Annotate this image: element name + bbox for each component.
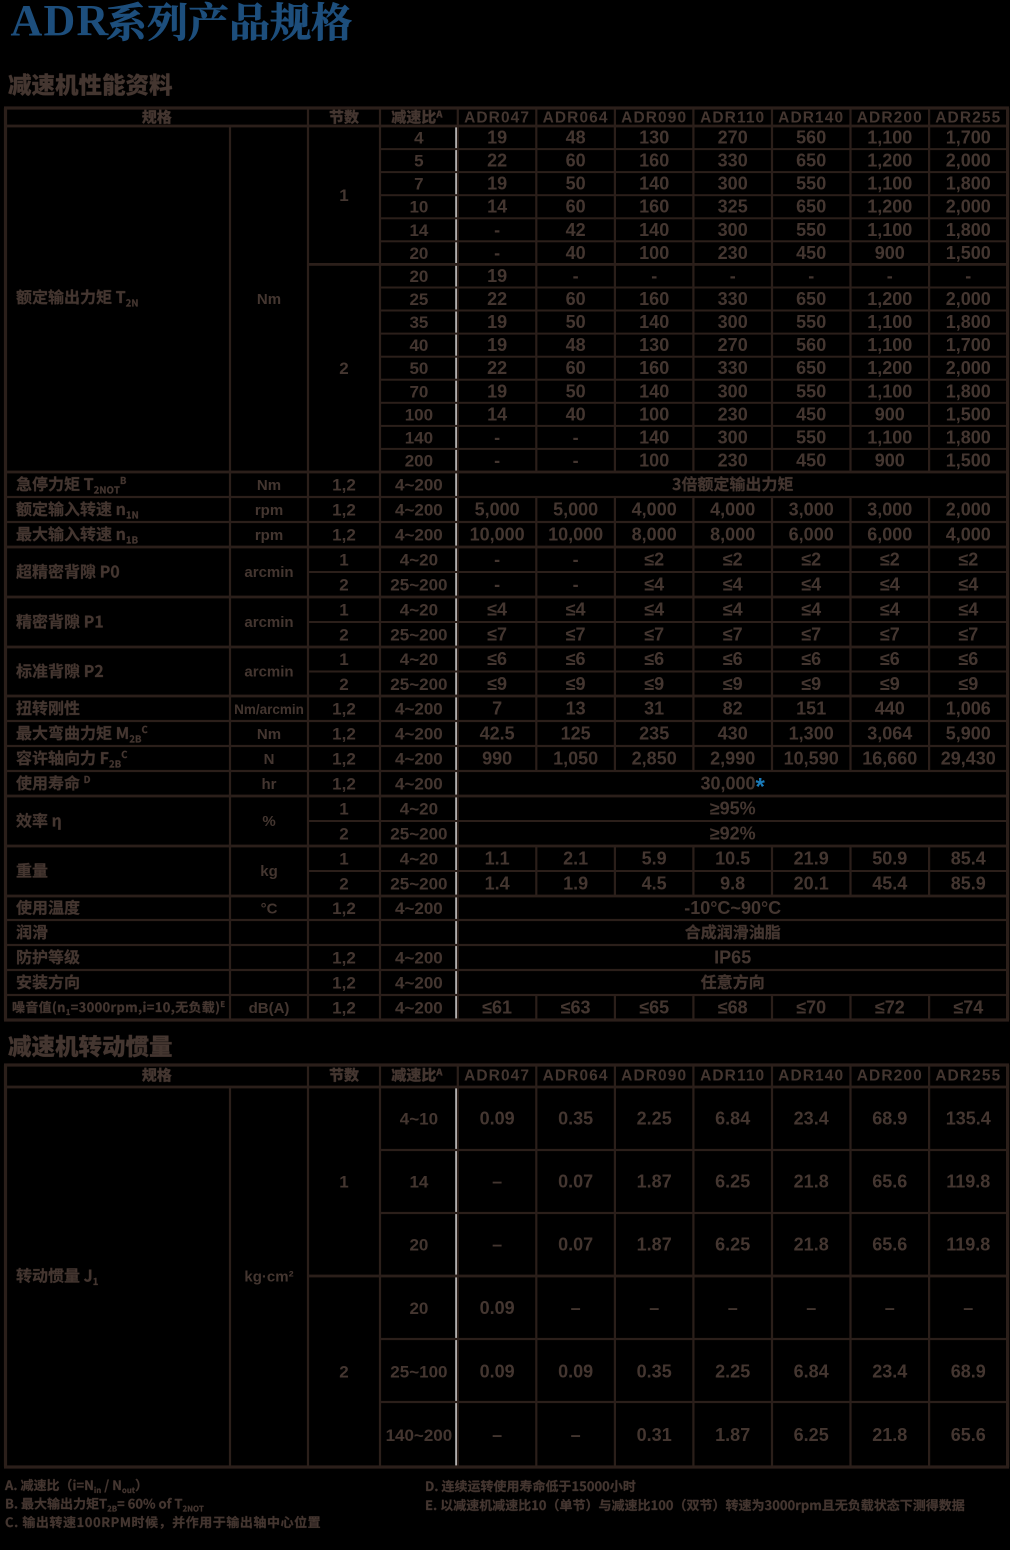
svg-text:≤4: ≤4: [801, 600, 821, 620]
svg-text:1,006: 1,006: [946, 699, 991, 719]
svg-text:rpm: rpm: [255, 502, 283, 519]
svg-text:4: 4: [414, 129, 424, 148]
svg-text:200: 200: [405, 452, 433, 471]
svg-text:1,500: 1,500: [946, 451, 991, 471]
svg-text:1,200: 1,200: [867, 197, 912, 217]
svg-text:1,800: 1,800: [946, 220, 991, 240]
svg-text:≤63: ≤63: [561, 998, 591, 1018]
svg-text:230: 230: [718, 451, 748, 471]
svg-text:≤9: ≤9: [487, 674, 507, 694]
svg-text:≤65: ≤65: [639, 998, 669, 1018]
svg-text:900: 900: [875, 451, 905, 471]
svg-text:2,000: 2,000: [946, 289, 991, 309]
svg-text:4~200: 4~200: [395, 725, 443, 744]
svg-text:1,100: 1,100: [867, 174, 912, 194]
svg-text:10.5: 10.5: [715, 849, 750, 869]
svg-text:14: 14: [409, 221, 428, 240]
svg-text:5,000: 5,000: [553, 500, 598, 520]
svg-text:1: 1: [339, 186, 348, 205]
svg-text:140: 140: [639, 381, 669, 401]
svg-text:ADR110: ADR110: [700, 110, 765, 127]
svg-text:100: 100: [405, 405, 433, 424]
svg-text:0.07: 0.07: [558, 1235, 593, 1255]
svg-text:≤7: ≤7: [880, 625, 900, 645]
svg-text:50: 50: [409, 359, 428, 378]
svg-text:–: –: [492, 1172, 502, 1192]
svg-text:≤4: ≤4: [644, 600, 664, 620]
svg-text:990: 990: [482, 749, 512, 769]
svg-text:23.4: 23.4: [794, 1109, 829, 1129]
svg-text:ADR140: ADR140: [778, 110, 844, 127]
svg-text:2: 2: [339, 1363, 348, 1382]
svg-text:0.09: 0.09: [480, 1109, 515, 1129]
svg-text:≤61: ≤61: [482, 998, 512, 1018]
svg-text:6.25: 6.25: [715, 1235, 750, 1255]
svg-text:1.87: 1.87: [637, 1172, 672, 1192]
svg-text:≤9: ≤9: [566, 674, 586, 694]
svg-text:550: 550: [796, 427, 826, 447]
svg-text:19: 19: [487, 266, 507, 286]
svg-text:20: 20: [409, 1299, 428, 1318]
svg-text:23.4: 23.4: [872, 1362, 907, 1382]
svg-text:arcmin: arcmin: [244, 564, 293, 581]
svg-text:5.9: 5.9: [642, 849, 667, 869]
svg-text:13: 13: [566, 699, 586, 719]
svg-text:650: 650: [796, 151, 826, 171]
svg-text:22: 22: [487, 358, 507, 378]
svg-text:ADR255: ADR255: [935, 1068, 1001, 1085]
svg-text:70: 70: [409, 382, 428, 401]
svg-text:-: -: [965, 266, 971, 286]
svg-text:3,000: 3,000: [867, 500, 912, 520]
svg-text:2: 2: [339, 675, 348, 694]
svg-text:4~20: 4~20: [400, 850, 438, 869]
svg-text:1.87: 1.87: [637, 1235, 672, 1255]
svg-text:35: 35: [409, 313, 428, 332]
svg-text:0.09: 0.09: [480, 1298, 515, 1318]
svg-text:19: 19: [487, 128, 507, 148]
svg-text:dB(A): dB(A): [249, 1000, 290, 1017]
svg-text:≤6: ≤6: [487, 649, 507, 669]
svg-text:440: 440: [875, 699, 905, 719]
svg-text:300: 300: [718, 381, 748, 401]
svg-text:140~200: 140~200: [386, 1426, 453, 1445]
svg-text:3,000: 3,000: [789, 500, 834, 520]
svg-text:–: –: [571, 1425, 581, 1445]
svg-text:ADR: ADR: [11, 0, 110, 45]
svg-text:Nm: Nm: [257, 477, 281, 494]
svg-text:19: 19: [487, 312, 507, 332]
svg-text:8,000: 8,000: [710, 525, 755, 545]
svg-text:2,990: 2,990: [710, 749, 755, 769]
svg-text:%: %: [262, 813, 275, 830]
svg-text:325: 325: [718, 197, 748, 217]
svg-text:48: 48: [566, 128, 586, 148]
svg-text:≤2: ≤2: [801, 550, 821, 570]
svg-text:40: 40: [566, 404, 586, 424]
svg-text:≤70: ≤70: [796, 998, 826, 1018]
svg-text:4.5: 4.5: [642, 874, 667, 894]
svg-text:2: 2: [339, 576, 348, 595]
svg-text:0.31: 0.31: [637, 1425, 672, 1445]
svg-text:≤9: ≤9: [723, 674, 743, 694]
svg-text:-: -: [573, 266, 579, 286]
svg-text:4,000: 4,000: [632, 500, 677, 520]
svg-text:1,800: 1,800: [946, 312, 991, 332]
svg-text:330: 330: [718, 151, 748, 171]
svg-text:6,000: 6,000: [867, 525, 912, 545]
svg-text:≤6: ≤6: [644, 649, 664, 669]
svg-text:1: 1: [339, 601, 348, 620]
svg-text:1,100: 1,100: [867, 381, 912, 401]
svg-text:2,000: 2,000: [946, 358, 991, 378]
svg-text:≤9: ≤9: [880, 674, 900, 694]
svg-text:1.9: 1.9: [563, 874, 588, 894]
svg-text:ADR090: ADR090: [621, 1068, 687, 1085]
svg-text:14: 14: [487, 197, 507, 217]
svg-text:135.4: 135.4: [946, 1109, 991, 1129]
svg-text:1,2: 1,2: [332, 476, 356, 495]
svg-text:4~200: 4~200: [395, 700, 443, 719]
svg-text:≤4: ≤4: [880, 575, 900, 595]
svg-text:1,2: 1,2: [332, 725, 356, 744]
svg-text:50: 50: [566, 312, 586, 332]
svg-text:≤4: ≤4: [566, 600, 586, 620]
svg-text:29,430: 29,430: [941, 749, 996, 769]
svg-text:1.87: 1.87: [715, 1425, 750, 1445]
svg-text:6.25: 6.25: [715, 1172, 750, 1192]
svg-text:270: 270: [718, 128, 748, 148]
svg-text:-: -: [494, 575, 500, 595]
svg-text:-: -: [494, 427, 500, 447]
svg-text:160: 160: [639, 151, 669, 171]
svg-text:arcmin: arcmin: [244, 664, 293, 681]
svg-text:1,300: 1,300: [789, 724, 834, 744]
svg-text:1,2: 1,2: [332, 775, 356, 794]
svg-text:ADR110: ADR110: [700, 1068, 765, 1085]
svg-text:1: 1: [339, 1173, 348, 1192]
svg-text:4~200: 4~200: [395, 526, 443, 545]
svg-text:25~200: 25~200: [390, 875, 447, 894]
svg-text:25~200: 25~200: [390, 825, 447, 844]
svg-text:10,000: 10,000: [470, 525, 525, 545]
svg-text:430: 430: [718, 724, 748, 744]
svg-text:100: 100: [639, 243, 669, 263]
svg-text:1,500: 1,500: [946, 404, 991, 424]
svg-text:60: 60: [566, 197, 586, 217]
svg-text:130: 130: [639, 128, 669, 148]
svg-text:6.25: 6.25: [794, 1425, 829, 1445]
svg-text:1,2: 1,2: [332, 974, 356, 993]
svg-text:2,000: 2,000: [946, 151, 991, 171]
svg-text:85.4: 85.4: [951, 849, 986, 869]
svg-text:50.9: 50.9: [872, 849, 907, 869]
svg-text:≤4: ≤4: [487, 600, 507, 620]
svg-text:22: 22: [487, 289, 507, 309]
svg-text:≤6: ≤6: [566, 649, 586, 669]
svg-text:140: 140: [639, 312, 669, 332]
svg-text:–: –: [963, 1298, 973, 1318]
svg-text:1,200: 1,200: [867, 289, 912, 309]
svg-text:7: 7: [414, 175, 423, 194]
svg-text:550: 550: [796, 174, 826, 194]
svg-text:-: -: [573, 451, 579, 471]
svg-text:-: -: [494, 220, 500, 240]
svg-text:≤74: ≤74: [953, 998, 983, 1018]
svg-text:230: 230: [718, 404, 748, 424]
svg-text:–: –: [806, 1298, 816, 1318]
svg-text:85.9: 85.9: [951, 874, 986, 894]
svg-text:≤7: ≤7: [801, 625, 821, 645]
svg-text:2.25: 2.25: [637, 1109, 672, 1129]
svg-text:arcmin: arcmin: [244, 614, 293, 631]
svg-text:100: 100: [639, 404, 669, 424]
svg-text:8,000: 8,000: [632, 525, 677, 545]
svg-text:1: 1: [339, 800, 348, 819]
svg-text:1: 1: [339, 551, 348, 570]
svg-text:Nm: Nm: [257, 291, 281, 308]
svg-text:1.4: 1.4: [485, 874, 510, 894]
svg-text:ADR047: ADR047: [464, 1068, 530, 1085]
svg-text:2,000: 2,000: [946, 500, 991, 520]
svg-text:25~200: 25~200: [390, 626, 447, 645]
svg-text:160: 160: [639, 289, 669, 309]
svg-text:≤9: ≤9: [958, 674, 978, 694]
svg-text:°C: °C: [261, 901, 278, 918]
svg-text:65.6: 65.6: [872, 1172, 907, 1192]
svg-text:65.6: 65.6: [872, 1235, 907, 1255]
svg-text:≤2: ≤2: [880, 550, 900, 570]
svg-text:22: 22: [487, 151, 507, 171]
svg-text:60: 60: [566, 151, 586, 171]
svg-text:1,2: 1,2: [332, 526, 356, 545]
svg-text:ADR200: ADR200: [857, 110, 923, 127]
svg-text:ADR064: ADR064: [543, 1068, 609, 1085]
svg-text:50: 50: [566, 381, 586, 401]
svg-text:4~200: 4~200: [395, 999, 443, 1018]
svg-text:–: –: [885, 1298, 895, 1318]
svg-text:N: N: [264, 751, 275, 768]
svg-text:19: 19: [487, 381, 507, 401]
svg-text:6.84: 6.84: [715, 1109, 750, 1129]
svg-text:2,850: 2,850: [632, 749, 677, 769]
svg-text:151: 151: [796, 699, 826, 719]
svg-text:300: 300: [718, 427, 748, 447]
svg-text:Nm: Nm: [257, 726, 281, 743]
svg-text:330: 330: [718, 358, 748, 378]
svg-text:270: 270: [718, 335, 748, 355]
svg-text:21.8: 21.8: [872, 1425, 907, 1445]
svg-text:14: 14: [409, 1173, 428, 1192]
svg-text:–: –: [649, 1298, 659, 1318]
svg-text:4~200: 4~200: [395, 476, 443, 495]
svg-text:4~20: 4~20: [400, 800, 438, 819]
svg-text:140: 140: [639, 427, 669, 447]
svg-text:1,500: 1,500: [946, 243, 991, 263]
svg-text:≤4: ≤4: [880, 600, 900, 620]
svg-text:4~200: 4~200: [395, 974, 443, 993]
svg-text:≤7: ≤7: [644, 625, 664, 645]
svg-text:140: 140: [405, 428, 433, 447]
svg-text:≤4: ≤4: [723, 600, 743, 620]
svg-text:4~200: 4~200: [395, 949, 443, 968]
svg-text:25~200: 25~200: [390, 576, 447, 595]
svg-text:3,064: 3,064: [867, 724, 912, 744]
svg-text:4~20: 4~20: [400, 551, 438, 570]
svg-text:42: 42: [566, 220, 586, 240]
svg-text:25~100: 25~100: [390, 1363, 447, 1382]
svg-text:-: -: [730, 266, 736, 286]
svg-text:20.1: 20.1: [794, 874, 829, 894]
svg-text:≤6: ≤6: [880, 649, 900, 669]
svg-text:9.8: 9.8: [720, 874, 745, 894]
svg-text:hr: hr: [262, 776, 277, 793]
svg-text:≤4: ≤4: [958, 600, 978, 620]
svg-text:1,100: 1,100: [867, 427, 912, 447]
svg-text:≥92%: ≥92%: [710, 824, 756, 844]
svg-text:40: 40: [566, 243, 586, 263]
svg-text:1,100: 1,100: [867, 312, 912, 332]
svg-text:≤4: ≤4: [723, 575, 743, 595]
svg-text:–: –: [571, 1298, 581, 1318]
svg-text:0.07: 0.07: [558, 1172, 593, 1192]
svg-text:kg·cm²: kg·cm²: [244, 1269, 293, 1286]
svg-text:ADR140: ADR140: [778, 1068, 844, 1085]
svg-text:50: 50: [566, 174, 586, 194]
svg-text:4~200: 4~200: [395, 750, 443, 769]
svg-text:≥95%: ≥95%: [710, 799, 756, 819]
svg-text:1,800: 1,800: [946, 427, 991, 447]
svg-text:≤4: ≤4: [644, 575, 664, 595]
svg-text:20: 20: [409, 244, 428, 263]
svg-text:≤7: ≤7: [723, 625, 743, 645]
svg-text:31: 31: [644, 699, 664, 719]
svg-text:2: 2: [339, 825, 348, 844]
svg-text:kg: kg: [260, 863, 278, 880]
svg-text:≤9: ≤9: [644, 674, 664, 694]
svg-text:14: 14: [487, 404, 507, 424]
svg-text:4~20: 4~20: [400, 601, 438, 620]
svg-text:rpm: rpm: [255, 527, 283, 544]
svg-text:119.8: 119.8: [946, 1235, 990, 1255]
svg-text:4~200: 4~200: [395, 775, 443, 794]
svg-text:20: 20: [409, 1236, 428, 1255]
svg-text:0.09: 0.09: [480, 1362, 515, 1382]
svg-text:4~200: 4~200: [395, 899, 443, 918]
svg-text:119.8: 119.8: [946, 1172, 990, 1192]
svg-text:125: 125: [561, 724, 591, 744]
svg-text:ADR064: ADR064: [543, 110, 609, 127]
svg-text:550: 550: [796, 381, 826, 401]
svg-text:560: 560: [796, 128, 826, 148]
svg-text:160: 160: [639, 197, 669, 217]
svg-text:60: 60: [566, 358, 586, 378]
svg-text:≤7: ≤7: [487, 625, 507, 645]
svg-text:≤68: ≤68: [718, 998, 748, 1018]
svg-text:≤2: ≤2: [723, 550, 743, 570]
svg-text:450: 450: [796, 243, 826, 263]
svg-text:300: 300: [718, 174, 748, 194]
svg-text:5,900: 5,900: [946, 724, 991, 744]
svg-text:140: 140: [639, 174, 669, 194]
svg-text:-: -: [573, 427, 579, 447]
svg-text:1,2: 1,2: [332, 501, 356, 520]
svg-text:230: 230: [718, 243, 748, 263]
svg-text:1: 1: [339, 650, 348, 669]
svg-text:-: -: [494, 550, 500, 570]
svg-text:≤2: ≤2: [644, 550, 664, 570]
svg-text:-10°C~90°C: -10°C~90°C: [684, 898, 781, 918]
svg-text:68.9: 68.9: [872, 1109, 907, 1129]
svg-text:235: 235: [639, 724, 669, 744]
svg-text:550: 550: [796, 312, 826, 332]
svg-text:160: 160: [639, 358, 669, 378]
svg-text:650: 650: [796, 358, 826, 378]
svg-text:300: 300: [718, 220, 748, 240]
svg-text:25: 25: [409, 290, 428, 309]
svg-text:1,700: 1,700: [946, 335, 991, 355]
svg-text:ADR047: ADR047: [464, 110, 530, 127]
svg-text:20: 20: [409, 267, 428, 286]
svg-text:10,000: 10,000: [548, 525, 603, 545]
svg-text:900: 900: [875, 243, 905, 263]
svg-text:IP65: IP65: [714, 948, 751, 968]
svg-text:0.35: 0.35: [558, 1109, 593, 1129]
svg-text:1,100: 1,100: [867, 128, 912, 148]
svg-text:7: 7: [492, 699, 502, 719]
svg-text:10: 10: [409, 198, 428, 217]
svg-text:≤72: ≤72: [875, 998, 905, 1018]
svg-text:-: -: [573, 575, 579, 595]
svg-text:ADR090: ADR090: [621, 110, 687, 127]
svg-text:≤6: ≤6: [723, 649, 743, 669]
svg-text:60: 60: [566, 289, 586, 309]
svg-text:1,800: 1,800: [946, 174, 991, 194]
svg-text:900: 900: [875, 404, 905, 424]
svg-text:1,2: 1,2: [332, 700, 356, 719]
svg-text:≤4: ≤4: [958, 575, 978, 595]
svg-text:4,000: 4,000: [946, 525, 991, 545]
svg-text:19: 19: [487, 335, 507, 355]
svg-text:1,700: 1,700: [946, 128, 991, 148]
svg-text:2.25: 2.25: [715, 1362, 750, 1382]
svg-text:68.9: 68.9: [951, 1362, 986, 1382]
svg-text:≤6: ≤6: [801, 649, 821, 669]
svg-text:-: -: [808, 266, 814, 286]
svg-text:–: –: [728, 1298, 738, 1318]
svg-text:1,100: 1,100: [867, 220, 912, 240]
svg-text:25~200: 25~200: [390, 675, 447, 694]
svg-text:≤7: ≤7: [566, 625, 586, 645]
svg-text:330: 330: [718, 289, 748, 309]
svg-text:ADR200: ADR200: [857, 1068, 923, 1085]
svg-text:2,000: 2,000: [946, 197, 991, 217]
svg-text:1,200: 1,200: [867, 151, 912, 171]
svg-text:-: -: [573, 550, 579, 570]
svg-text:Nm/arcmin: Nm/arcmin: [234, 702, 304, 717]
svg-text:560: 560: [796, 335, 826, 355]
svg-text:≤6: ≤6: [958, 649, 978, 669]
svg-text:1.1: 1.1: [485, 849, 510, 869]
svg-text:–: –: [492, 1425, 502, 1445]
svg-text:5,000: 5,000: [475, 500, 520, 520]
svg-text:1,2: 1,2: [332, 999, 356, 1018]
svg-text:65.6: 65.6: [951, 1425, 986, 1445]
svg-text:ADR255: ADR255: [935, 110, 1001, 127]
svg-text:2: 2: [339, 875, 348, 894]
svg-text:130: 130: [639, 335, 669, 355]
svg-text:≤9: ≤9: [801, 674, 821, 694]
